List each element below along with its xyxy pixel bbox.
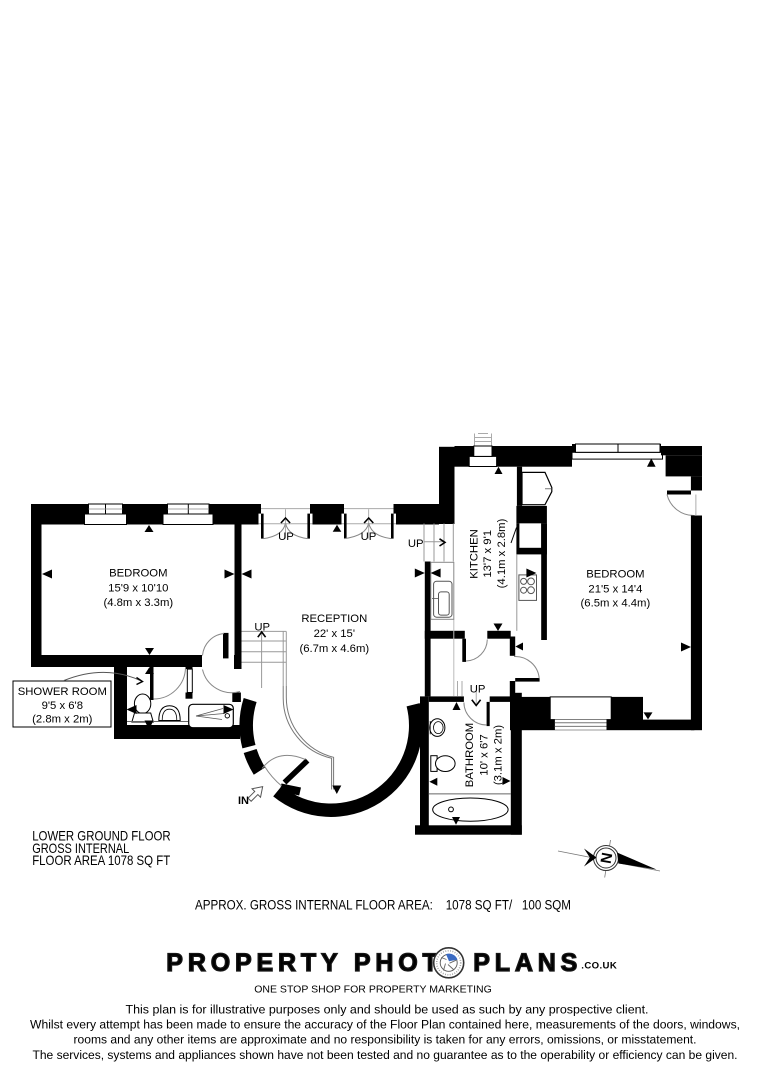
svg-text:This plan is for illustrative: This plan is for illustrative purposes o… (126, 1003, 649, 1017)
svg-text:BEDROOM: BEDROOM (109, 567, 167, 579)
svg-text:(4.1m x 2.8m): (4.1m x 2.8m) (496, 518, 508, 588)
svg-text:rooms and any other items are: rooms and any other items are approximat… (74, 1033, 697, 1047)
svg-text:APPROX. GROSS INTERNAL FLOOR A: APPROX. GROSS INTERNAL FLOOR AREA: 1078 … (195, 897, 571, 912)
svg-text:KITCHEN: KITCHEN (468, 529, 480, 579)
svg-text:ONE STOP SHOP FOR PROPERTY MAR: ONE STOP SHOP FOR PROPERTY MARKETING (254, 984, 492, 996)
svg-text:(4.8m x 3.3m): (4.8m x 3.3m) (103, 597, 173, 609)
svg-text:Whilst every attempt has been: Whilst every attempt has been made to en… (30, 1018, 740, 1032)
svg-text:9'5 x 6'8: 9'5 x 6'8 (42, 700, 83, 712)
svg-text:UP: UP (470, 683, 486, 695)
svg-text:(6.5m x 4.4m): (6.5m x 4.4m) (581, 597, 651, 609)
svg-text:UP: UP (408, 538, 424, 550)
svg-text:UP: UP (278, 531, 294, 543)
svg-text:BEDROOM: BEDROOM (586, 569, 644, 581)
svg-text:(3.1m x 2m): (3.1m x 2m) (492, 725, 504, 785)
svg-text:FLOOR AREA 1078 SQ FT: FLOOR AREA 1078 SQ FT (32, 853, 170, 868)
svg-text:21'5 x 14'4: 21'5 x 14'4 (588, 583, 642, 595)
svg-text:(6.7m x 4.6m): (6.7m x 4.6m) (299, 643, 369, 655)
svg-text:The services, systems and appl: The services, systems and appliances sho… (33, 1048, 738, 1062)
svg-text:UP: UP (254, 621, 270, 633)
svg-text:UP: UP (361, 531, 377, 543)
svg-text:PLANS: PLANS (473, 949, 577, 977)
svg-text:RECEPTION: RECEPTION (301, 613, 367, 625)
svg-text:13'7 x 9'1: 13'7 x 9'1 (482, 530, 494, 578)
svg-text:(2.8m x 2m): (2.8m x 2m) (32, 714, 92, 726)
svg-text:15'9 x 10'10: 15'9 x 10'10 (108, 582, 168, 594)
svg-text:BATHROOM: BATHROOM (464, 723, 476, 787)
svg-text:10' x 6'7: 10' x 6'7 (479, 734, 491, 775)
svg-text:IN: IN (238, 795, 249, 807)
svg-text:SHOWER ROOM: SHOWER ROOM (18, 686, 107, 698)
svg-text:22' x 15': 22' x 15' (314, 628, 355, 640)
svg-text:.CO.UK: .CO.UK (581, 960, 617, 971)
